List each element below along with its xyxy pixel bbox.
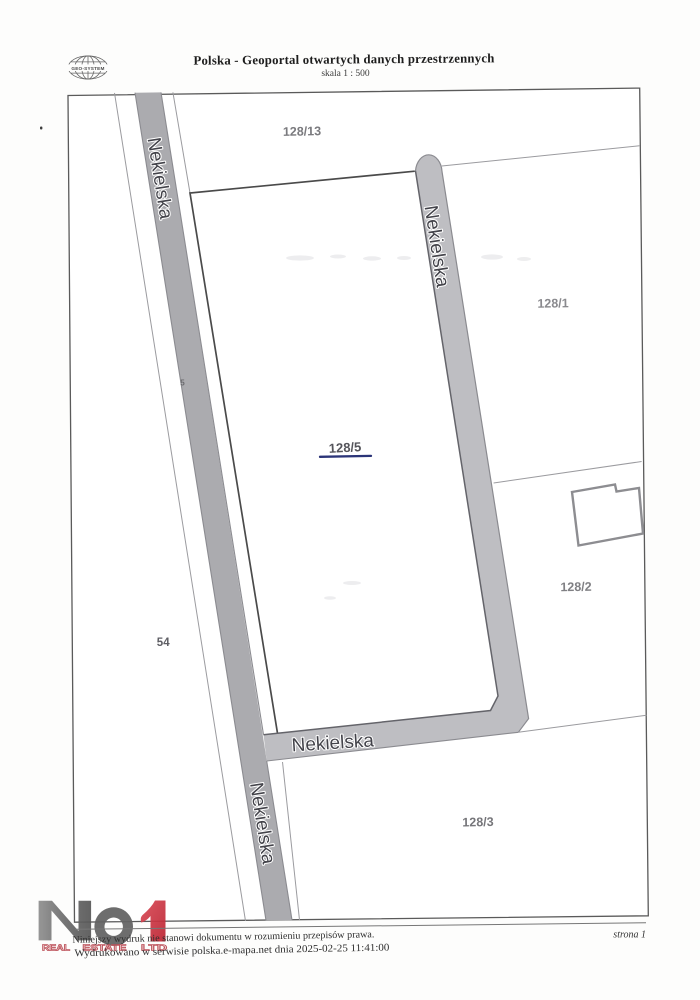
- svg-text:5: 5: [180, 379, 185, 388]
- svg-text:128/1: 128/1: [537, 296, 569, 311]
- svg-text:54: 54: [157, 637, 170, 649]
- svg-text:128/5: 128/5: [328, 439, 361, 456]
- svg-text:GEO-SYSTEM: GEO-SYSTEM: [71, 66, 104, 71]
- svg-text:skala 1 : 500: skala 1 : 500: [321, 69, 370, 79]
- svg-text:128/2: 128/2: [560, 580, 592, 595]
- svg-text:Polska - Geoportal otwartych d: Polska - Geoportal otwartych danych prze…: [193, 51, 494, 67]
- svg-text:REAL: REAL: [42, 944, 70, 953]
- svg-text:128/13: 128/13: [283, 124, 322, 139]
- svg-text:strona 1: strona 1: [613, 930, 646, 941]
- svg-text:128/3: 128/3: [462, 815, 494, 830]
